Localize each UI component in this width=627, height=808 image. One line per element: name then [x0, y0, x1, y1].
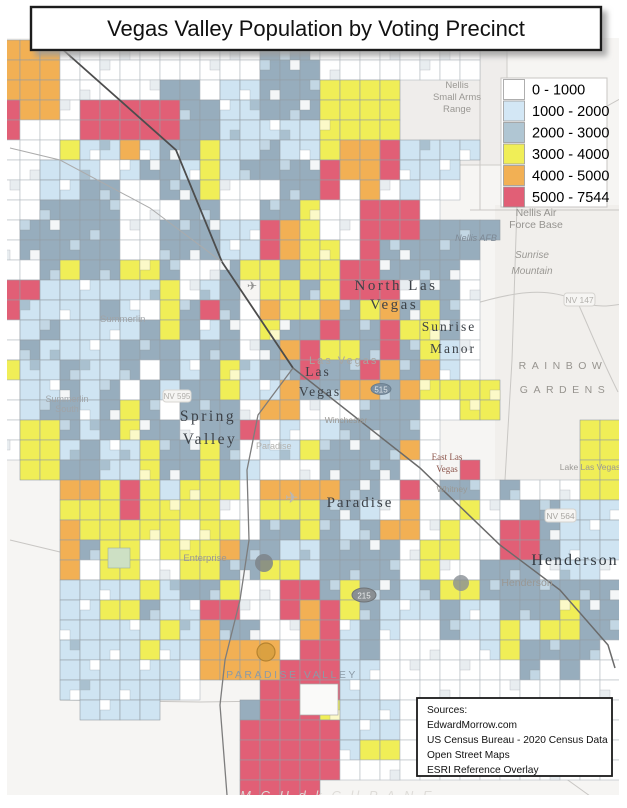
svg-text:515: 515	[374, 386, 388, 395]
svg-text:2000 - 3000: 2000 - 3000	[532, 126, 609, 142]
svg-text:1000 - 2000: 1000 - 2000	[532, 104, 609, 120]
svg-text:Sunrise: Sunrise	[422, 319, 477, 334]
svg-text:Lake Las Vegas: Lake Las Vegas	[560, 462, 621, 472]
svg-text:Vegas: Vegas	[436, 464, 458, 474]
svg-text:Manor: Manor	[430, 341, 476, 356]
svg-text:Nellis Air: Nellis Air	[516, 207, 557, 219]
svg-text:Henderson: Henderson	[501, 577, 553, 589]
svg-text:RAINBOW: RAINBOW	[519, 360, 608, 372]
svg-text:Enterprise: Enterprise	[183, 553, 226, 564]
svg-text:Henderson: Henderson	[531, 552, 618, 569]
svg-text:NV 564: NV 564	[546, 511, 575, 521]
svg-text:✈: ✈	[285, 490, 298, 507]
svg-text:✈: ✈	[247, 279, 257, 293]
svg-text:Paradise: Paradise	[256, 441, 292, 451]
svg-text:Force Base: Force Base	[509, 219, 563, 231]
svg-text:Spring: Spring	[180, 408, 236, 425]
svg-text:Paradise: Paradise	[327, 495, 394, 511]
svg-text:NV 595: NV 595	[164, 392, 191, 401]
svg-text:North Las: North Las	[355, 278, 438, 294]
svg-text:Range: Range	[443, 104, 471, 115]
svg-text:NV 147: NV 147	[565, 295, 594, 305]
svg-text:Whitney: Whitney	[437, 484, 468, 494]
svg-text:Summerlin: Summerlin	[45, 394, 88, 404]
svg-text:4000 - 5000: 4000 - 5000	[532, 169, 609, 185]
svg-text:Nellis AFB: Nellis AFB	[455, 233, 497, 243]
svg-text:East Las: East Las	[432, 452, 463, 462]
svg-text:0 - 1000: 0 - 1000	[532, 83, 585, 99]
svg-text:5000 - 7544: 5000 - 7544	[532, 190, 609, 206]
svg-text:Mountain: Mountain	[511, 266, 553, 277]
svg-text:3000 - 4000: 3000 - 4000	[532, 147, 609, 163]
svg-text:US Census Bureau - 2020 Census: US Census Bureau - 2020 Census Data	[427, 735, 608, 746]
svg-text:Summerlin: Summerlin	[100, 314, 145, 325]
svg-text:Small Arms: Small Arms	[433, 92, 481, 103]
svg-text:Nellis: Nellis	[445, 80, 468, 91]
svg-text:Vegas: Vegas	[370, 297, 418, 313]
svg-text:GARDENS: GARDENS	[520, 384, 610, 396]
svg-text:Winchester: Winchester	[325, 415, 368, 425]
svg-text:215: 215	[357, 592, 371, 601]
svg-text:ESRI Reference Overlay: ESRI Reference Overlay	[427, 765, 539, 776]
svg-text:Vegas: Vegas	[299, 384, 341, 399]
svg-text:Open Street Maps: Open Street Maps	[427, 750, 510, 761]
svg-text:EdwardMorrow.com: EdwardMorrow.com	[427, 720, 517, 731]
svg-text:Sunrise: Sunrise	[515, 250, 549, 261]
svg-text:Las: Las	[305, 364, 331, 379]
svg-text:Sources:: Sources:	[427, 705, 467, 716]
svg-text:South: South	[55, 404, 79, 414]
svg-text:Vegas Valley Population by Vot: Vegas Valley Population by Voting Precin…	[107, 16, 525, 41]
svg-text:PARADISE VALLEY: PARADISE VALLEY	[226, 669, 358, 681]
svg-text:Valley: Valley	[183, 431, 238, 448]
